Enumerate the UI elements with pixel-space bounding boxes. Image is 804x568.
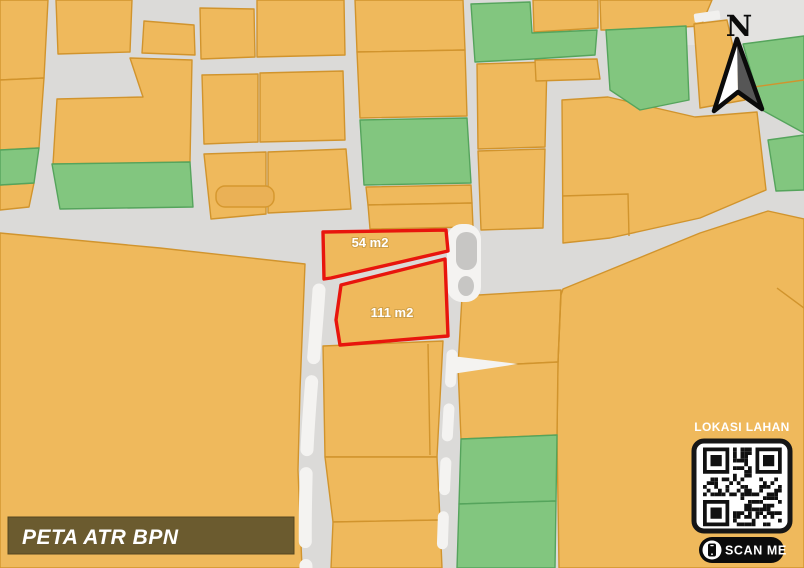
green-parcel <box>360 118 471 185</box>
map-title: PETA ATR BPN <box>22 526 179 549</box>
road-mark-gray <box>456 232 477 270</box>
green-parcel <box>0 148 39 185</box>
cadastral-map: 54 m2 111 m2 N LOKASI LAHAN SCAN ME PETA… <box>0 0 804 568</box>
parcel <box>202 74 258 144</box>
highlighted-plots: 54 m2 111 m2 <box>323 230 448 345</box>
compass-north-label: N <box>726 9 753 43</box>
parcel <box>458 290 561 367</box>
parcel <box>357 50 467 118</box>
green-parcel <box>459 435 557 504</box>
qr-panel: LOKASI LAHAN SCAN ME <box>694 420 790 563</box>
parcel <box>0 0 48 80</box>
parcel <box>331 520 442 568</box>
phone-icon <box>708 544 716 557</box>
parcel <box>142 21 195 55</box>
plot-54-label: 54 m2 <box>352 235 389 250</box>
parcel <box>257 0 345 57</box>
parcel <box>268 149 351 213</box>
parcel <box>0 183 34 210</box>
qr-panel-title: LOKASI LAHAN <box>694 420 789 434</box>
title-banner: PETA ATR BPN <box>8 517 294 554</box>
building-footprint <box>216 186 274 207</box>
parcel <box>478 149 545 230</box>
parcel <box>535 59 600 81</box>
green-parcel <box>457 501 556 568</box>
parcel <box>325 457 440 522</box>
parcel <box>0 78 44 150</box>
parcel <box>200 8 255 59</box>
parcel <box>533 0 598 32</box>
plot-111-label: 111 m2 <box>371 305 414 320</box>
parcel <box>323 341 443 457</box>
parcel <box>260 71 345 142</box>
map-canvas: 54 m2 111 m2 N LOKASI LAHAN SCAN ME PETA… <box>0 0 804 568</box>
green-parcel <box>52 162 193 209</box>
scan-me-pill: SCAN ME <box>699 537 787 563</box>
parcel <box>56 0 132 54</box>
scan-me-label: SCAN ME <box>725 544 787 558</box>
parcel <box>366 185 472 205</box>
parcel <box>355 0 465 52</box>
parcel <box>458 362 558 439</box>
road-mark-gray <box>458 276 474 296</box>
qr-code <box>703 448 782 527</box>
